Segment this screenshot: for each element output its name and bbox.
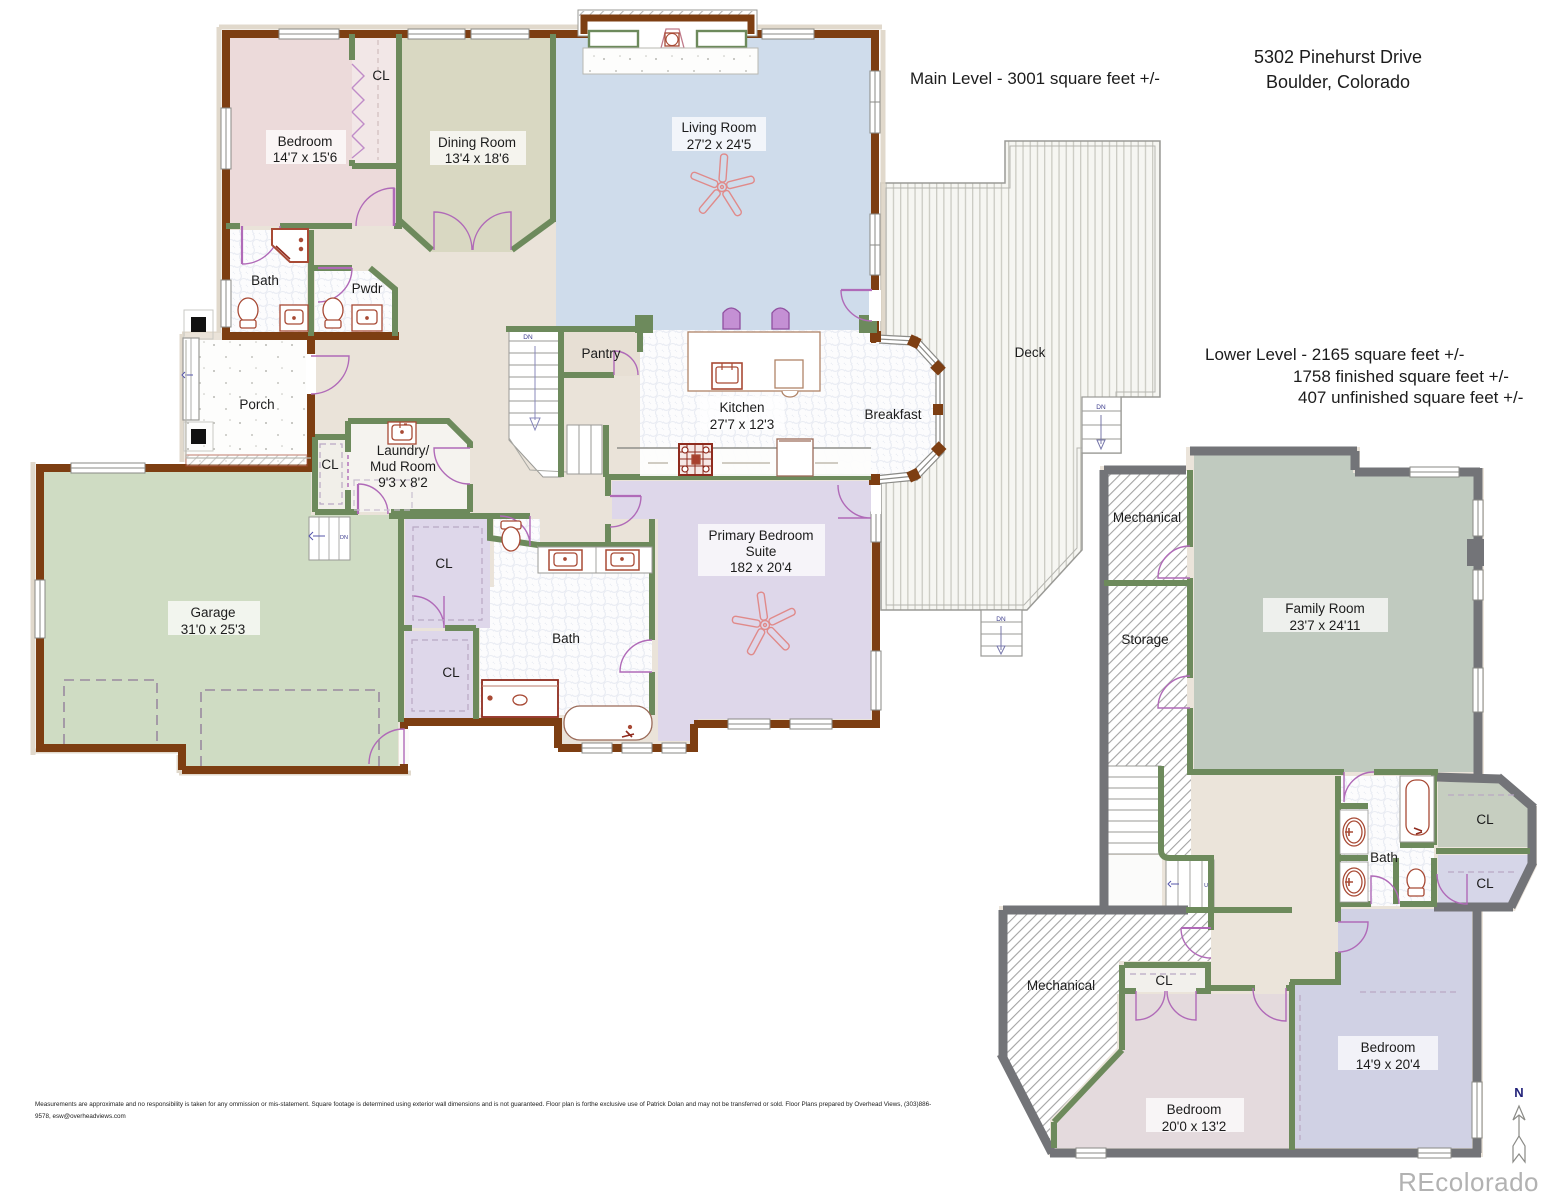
svg-text:407 unfinished square feet +/-: 407 unfinished square feet +/-	[1298, 388, 1523, 407]
svg-text:Living Room: Living Room	[681, 120, 756, 135]
svg-text:Primary Bedroom: Primary Bedroom	[708, 528, 813, 543]
svg-text:31'0 x 25'3: 31'0 x 25'3	[181, 622, 245, 637]
svg-text:5302 Pinehurst Drive: 5302 Pinehurst Drive	[1254, 47, 1422, 67]
svg-text:Kitchen: Kitchen	[719, 400, 764, 415]
svg-text:14'7 x 15'6: 14'7 x 15'6	[273, 150, 337, 165]
svg-text:DN: DN	[996, 616, 1006, 623]
svg-text:9578, esw@overheadviews.com: 9578, esw@overheadviews.com	[35, 1113, 126, 1120]
svg-text:CL: CL	[442, 665, 460, 680]
svg-text:Bath: Bath	[552, 631, 580, 646]
svg-text:Suite: Suite	[746, 544, 777, 559]
svg-text:CL: CL	[1476, 812, 1494, 827]
svg-text:DN: DN	[523, 334, 533, 341]
svg-text:Lower Level - 2165 square feet: Lower Level - 2165 square feet +/-	[1205, 345, 1464, 364]
svg-text:Breakfast: Breakfast	[864, 407, 921, 422]
svg-text:182 x 20'4: 182 x 20'4	[730, 560, 792, 575]
svg-text:Deck: Deck	[1015, 345, 1046, 360]
svg-text:CL: CL	[321, 457, 339, 472]
svg-text:Mechanical: Mechanical	[1027, 978, 1095, 993]
svg-text:Pantry: Pantry	[581, 346, 620, 361]
svg-text:Main Level - 3001 square feet: Main Level - 3001 square feet +/-	[910, 69, 1160, 88]
svg-text:CL: CL	[372, 68, 390, 83]
svg-text:27'7 x 12'3: 27'7 x 12'3	[710, 417, 774, 432]
svg-text:Measurements are approximate: Measurements are approximate and no resp…	[35, 1101, 931, 1108]
svg-text:Dining Room: Dining Room	[438, 135, 516, 150]
svg-text:Bedroom: Bedroom	[1361, 1040, 1416, 1055]
svg-text:Family Room: Family Room	[1285, 601, 1365, 616]
svg-text:Bedroom: Bedroom	[1167, 1102, 1222, 1117]
svg-text:REcolorado: REcolorado	[1398, 1167, 1539, 1197]
svg-text:DN: DN	[340, 535, 348, 541]
svg-text:Pwdr: Pwdr	[352, 281, 383, 296]
svg-text:Storage: Storage	[1121, 632, 1168, 647]
svg-text:27'2 x 24'5: 27'2 x 24'5	[687, 137, 751, 152]
svg-text:CL: CL	[1476, 876, 1494, 891]
svg-text:9'3 x 8'2: 9'3 x 8'2	[378, 475, 427, 490]
svg-text:N: N	[1514, 1085, 1523, 1100]
svg-text:Bath: Bath	[1370, 850, 1398, 865]
svg-text:Boulder, Colorado: Boulder, Colorado	[1266, 72, 1410, 92]
svg-text:Mechanical: Mechanical	[1113, 510, 1181, 525]
svg-text:14'9 x 20'4: 14'9 x 20'4	[1356, 1057, 1421, 1072]
svg-text:Bath: Bath	[251, 273, 279, 288]
svg-text:13'4 x 18'6: 13'4 x 18'6	[445, 151, 509, 166]
svg-text:20'0 x 13'2: 20'0 x 13'2	[1162, 1119, 1226, 1134]
svg-text:Porch: Porch	[239, 397, 274, 412]
svg-text:Bedroom: Bedroom	[278, 134, 333, 149]
svg-text:Mud Room: Mud Room	[370, 459, 436, 474]
svg-text:Garage: Garage	[190, 605, 235, 620]
svg-text:CL: CL	[435, 556, 453, 571]
svg-text:23'7 x 24'11: 23'7 x 24'11	[1290, 618, 1361, 633]
svg-text:1758 finished square feet +/-: 1758 finished square feet +/-	[1293, 367, 1509, 386]
svg-text:DN: DN	[1096, 404, 1106, 411]
svg-text:Laundry/: Laundry/	[377, 443, 430, 458]
svg-text:CL: CL	[1155, 973, 1173, 988]
